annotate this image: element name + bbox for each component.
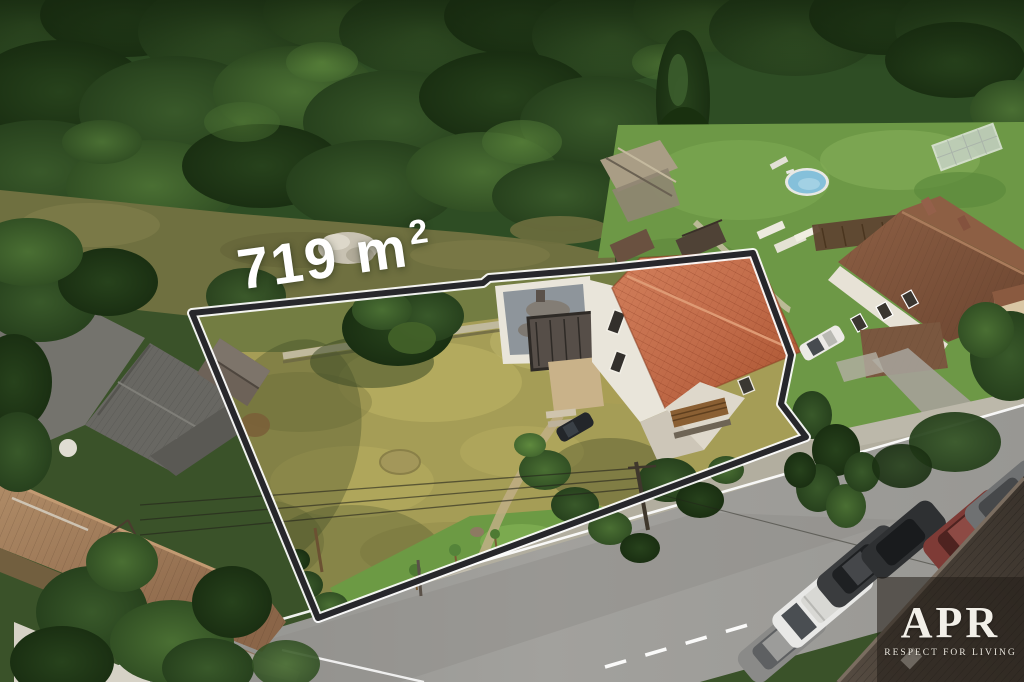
watermark-tagline: RESPECT FOR LIVING [884,648,1016,658]
watermark-logo: APR RESPECT FOR LIVING [877,577,1024,682]
pool [785,168,829,196]
area-label-superscript: 2 [406,212,432,253]
dirt-circle [380,450,420,474]
watermark-brand: APR [901,601,1000,645]
round-tub [59,439,77,457]
rock [470,527,484,537]
photo-scene [0,0,1024,682]
aerial-photo: 719 m2 APR RESPECT FOR LIVING [0,0,1024,682]
